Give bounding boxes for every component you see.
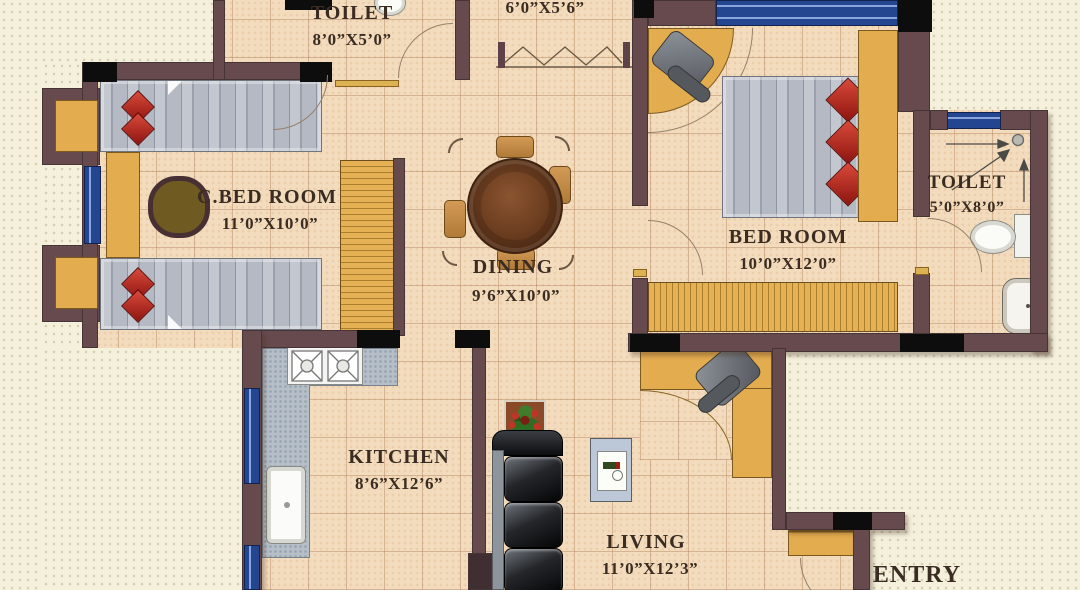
column [634, 0, 654, 18]
folding-partition-icon [494, 40, 634, 70]
room-label-dining: DINING [473, 256, 553, 279]
headboard-unit [858, 30, 898, 222]
outside-area [42, 165, 84, 245]
shoe-rack [788, 530, 854, 556]
wall [772, 348, 786, 530]
telephone-unit [590, 438, 632, 502]
room-label-kitchen: KITCHEN [348, 446, 449, 469]
window [244, 545, 260, 590]
wall [1030, 110, 1048, 352]
outside-area [786, 352, 1048, 512]
dining-chair [444, 200, 466, 238]
outside-area [42, 62, 82, 88]
wall [472, 333, 486, 557]
room-label-bed-room: BED ROOM [729, 226, 848, 249]
room-label-c-bed-room: C.BED ROOM [197, 186, 337, 209]
wall [628, 333, 1048, 352]
outside-area [0, 0, 213, 62]
window [84, 166, 101, 244]
telephone-panel [597, 451, 627, 491]
outside-area [930, 0, 1048, 110]
blanket-fold [168, 81, 182, 95]
wardrobe [340, 160, 394, 332]
wall [648, 0, 716, 26]
wall [853, 528, 870, 590]
sofa-side [492, 450, 504, 590]
blanket-fold [168, 315, 182, 329]
room-dims-toilet-right: 5’0”X8’0” [930, 199, 1005, 217]
wall [632, 278, 648, 334]
sofa-cushion [504, 548, 563, 590]
sink-drain [284, 502, 290, 508]
room-dims-c-bed-room: 11’0”X10’0” [222, 214, 318, 234]
column [455, 330, 490, 348]
room-label-living: LIVING [606, 531, 685, 554]
wall [468, 553, 492, 590]
wall [632, 0, 648, 206]
room-dims-bed-room: 10’0”X12’0” [739, 254, 836, 274]
window [716, 0, 898, 26]
door-sill [915, 267, 929, 275]
desk [106, 152, 140, 258]
sofa-cushion [504, 502, 563, 548]
room-dims-dining: 9’6”X10’0” [472, 286, 560, 306]
wall [898, 30, 930, 112]
nightstand [55, 257, 98, 309]
telephone-icon [603, 462, 620, 469]
study-desk [732, 388, 772, 478]
door-sill [335, 80, 399, 87]
column [357, 330, 400, 348]
wall [455, 0, 470, 80]
wall [913, 110, 930, 217]
entry-door-arc [800, 558, 855, 590]
sofa-cushion [504, 456, 563, 502]
room-dims-kitchen: 8’6”X12’6” [355, 474, 443, 494]
room-dims-dress: 6’0”X5’6” [505, 0, 584, 18]
sofa [492, 430, 563, 590]
room-label-toilet-right: TOILET [928, 172, 1007, 194]
room-dims-toilet-top: 8’0”X5’0” [312, 30, 391, 50]
nightstand [55, 100, 98, 152]
door-sill [633, 269, 647, 277]
window [244, 388, 260, 484]
wall [913, 273, 930, 335]
room-label-entry: ENTRY [873, 562, 961, 589]
floor-plan: TOILET 8’0”X5’0” 6’0”X5’6” C.BED ROOM 11… [0, 0, 1080, 590]
outside-area [42, 322, 82, 348]
column [900, 334, 964, 352]
column [898, 0, 932, 32]
room-label-toilet-top: TOILET [311, 2, 393, 25]
window [947, 112, 1001, 129]
dining-chair [496, 136, 534, 158]
room-dims-living: 11’0”X12’3” [602, 559, 698, 579]
wall [213, 0, 225, 80]
dining-table [467, 158, 563, 254]
wall [930, 110, 948, 130]
column [833, 512, 872, 530]
column [83, 62, 117, 82]
column [630, 334, 680, 352]
wardrobe [648, 282, 898, 332]
stove-icon [287, 347, 363, 385]
outside-area [42, 348, 242, 590]
wall [393, 158, 405, 336]
telephone-cord-icon [612, 470, 623, 481]
